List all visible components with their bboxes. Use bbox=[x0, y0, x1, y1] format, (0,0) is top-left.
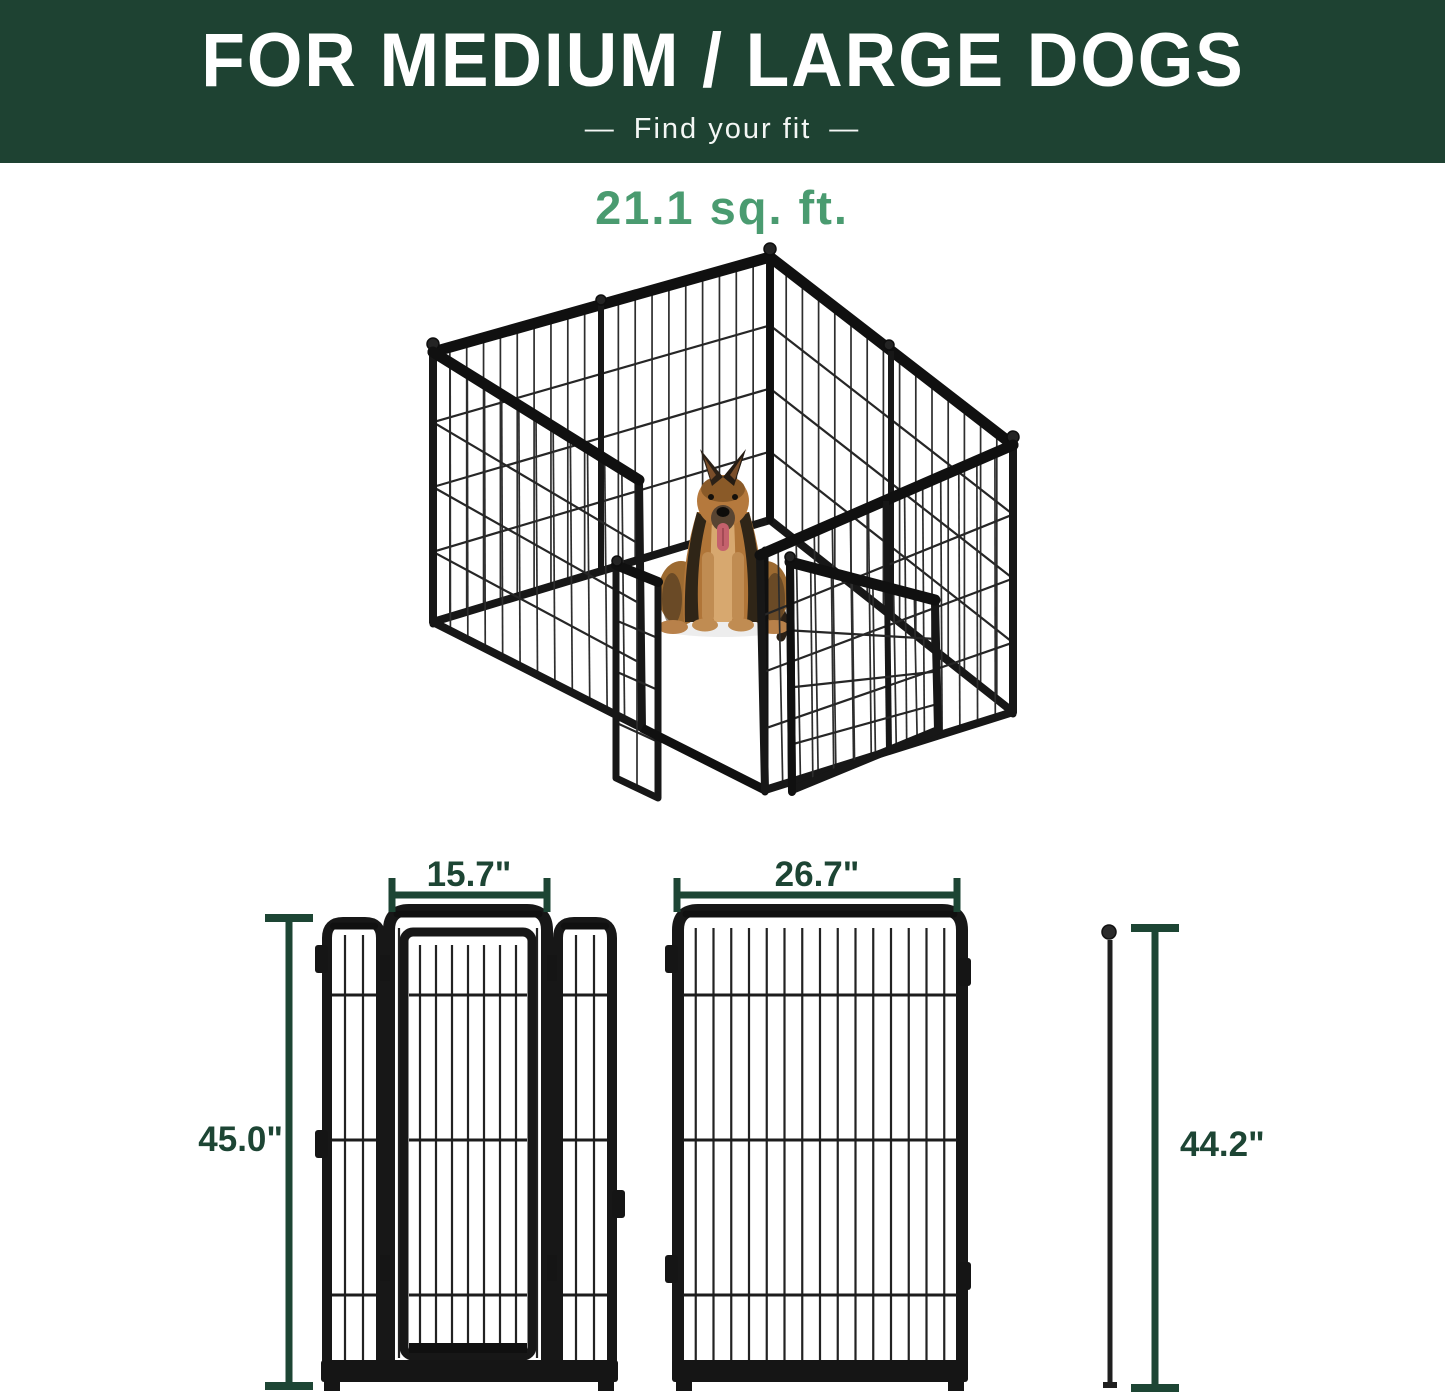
playpen-illustration bbox=[427, 243, 1019, 798]
illustration-canvas: 21.1 sq. ft. 15.7" 26.7" 45.0" 44.2" bbox=[0, 0, 1445, 1395]
dim-label-large-panel-width: 26.7" bbox=[775, 855, 860, 894]
product-infographic: FOR MEDIUM / LARGE DOGS — Find your fit … bbox=[0, 0, 1445, 1395]
dim-label-door-panel-height: 45.0" bbox=[198, 1120, 283, 1159]
dimension-diagrams: 15.7" 26.7" 45.0" 44.2" bbox=[198, 855, 1264, 1391]
dim-label-large-panel-height: 44.2" bbox=[1180, 1125, 1265, 1164]
dim-label-door-panel-width: 15.7" bbox=[427, 855, 512, 894]
area-label: 21.1 sq. ft. bbox=[595, 181, 849, 234]
